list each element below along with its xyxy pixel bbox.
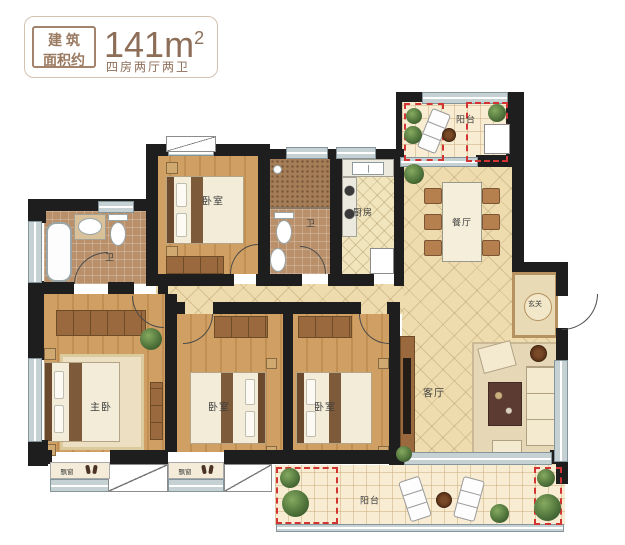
plant-icon bbox=[396, 446, 412, 462]
wall bbox=[394, 159, 404, 286]
area-tag-line1: 建 筑 bbox=[34, 30, 94, 50]
toilet bbox=[110, 222, 126, 246]
wall bbox=[28, 282, 74, 294]
room-label-bedroom-right: 卧室 bbox=[314, 399, 336, 414]
wall bbox=[165, 294, 177, 452]
dining-chair bbox=[424, 188, 442, 204]
sliding-door bbox=[404, 452, 552, 465]
plant-icon bbox=[534, 494, 561, 521]
fridge bbox=[370, 248, 394, 274]
wall bbox=[258, 144, 270, 286]
shower-head-icon bbox=[273, 165, 282, 174]
wardrobe bbox=[56, 310, 146, 336]
floorplan-page: 建 筑 面积约 141m2 四房两厅两卫 bbox=[0, 0, 625, 545]
area-tag-line2: 面积约 bbox=[34, 50, 94, 70]
area-exponent: 2 bbox=[194, 28, 204, 48]
plant-icon bbox=[404, 126, 422, 144]
coffee-table bbox=[488, 382, 522, 426]
room-label-bath-mid: 卫 bbox=[306, 217, 316, 230]
window bbox=[286, 147, 328, 159]
room-label-balcony-top: 阳台 bbox=[456, 113, 476, 126]
dining-chair bbox=[424, 240, 442, 256]
dining-chair bbox=[424, 214, 442, 230]
wall bbox=[213, 302, 283, 314]
plant-icon bbox=[280, 468, 300, 488]
ac-platform bbox=[166, 136, 216, 152]
bed-headboard bbox=[297, 373, 304, 443]
wall bbox=[396, 100, 402, 162]
toilet-tank bbox=[274, 212, 294, 219]
window bbox=[336, 147, 376, 159]
plant-icon bbox=[406, 108, 422, 124]
entry-door-arc bbox=[562, 294, 598, 330]
toilet bbox=[276, 220, 292, 244]
nightstand bbox=[266, 358, 277, 369]
bed-pillow bbox=[176, 183, 187, 207]
room-label-living: 客厅 bbox=[423, 385, 445, 400]
room-label-bay-window-left: 飘窗 bbox=[61, 466, 74, 476]
plant-icon bbox=[490, 504, 509, 523]
wall bbox=[28, 450, 52, 464]
wall bbox=[330, 149, 342, 286]
nightstand bbox=[44, 348, 56, 360]
room-label-balcony-bottom: 阳台 bbox=[360, 494, 380, 507]
dresser bbox=[166, 256, 224, 274]
balcony-railing bbox=[276, 524, 564, 532]
wall bbox=[389, 302, 400, 452]
bay-window-seat bbox=[50, 462, 110, 479]
room-label-foyer: 玄关 bbox=[528, 299, 542, 309]
window bbox=[554, 360, 568, 462]
bed-pillow bbox=[245, 379, 255, 405]
nightstand bbox=[378, 358, 389, 369]
bed-headboard bbox=[258, 373, 265, 443]
bay-window-glass bbox=[168, 479, 224, 492]
wall bbox=[224, 450, 390, 464]
bed-pillow bbox=[176, 213, 187, 237]
plant-icon bbox=[537, 469, 555, 487]
plant-icon bbox=[282, 490, 309, 517]
round-table bbox=[436, 492, 452, 508]
bay-window-glass bbox=[50, 479, 110, 492]
bed-headboard bbox=[45, 363, 52, 441]
toilet-tank bbox=[108, 214, 128, 221]
bed-pillow bbox=[54, 405, 64, 433]
dining-chair bbox=[482, 188, 500, 204]
bathtub bbox=[46, 222, 72, 282]
dresser bbox=[214, 316, 268, 338]
kitchen-sink bbox=[352, 162, 384, 175]
bed-pillow bbox=[245, 411, 255, 437]
wall bbox=[110, 450, 168, 464]
room-label-master-bedroom: 主卧 bbox=[90, 399, 112, 414]
wall bbox=[293, 302, 361, 314]
round-table bbox=[442, 128, 456, 142]
wall bbox=[328, 274, 374, 286]
sink bbox=[270, 248, 286, 272]
side-table bbox=[530, 345, 547, 362]
bed-blanket-stripe bbox=[191, 177, 203, 243]
window bbox=[98, 201, 134, 213]
area-value: 141m2 bbox=[104, 20, 204, 63]
wall bbox=[146, 148, 158, 286]
bed-pillow bbox=[306, 411, 316, 437]
dining-chair bbox=[482, 214, 500, 230]
room-label-kitchen: 厨房 bbox=[353, 206, 373, 219]
room-label-bath-left: 卫 bbox=[105, 251, 115, 264]
bed-headboard bbox=[167, 177, 174, 243]
wall bbox=[556, 262, 568, 296]
dresser bbox=[150, 382, 163, 440]
wall bbox=[156, 274, 234, 286]
wall bbox=[177, 302, 185, 314]
plant-icon bbox=[140, 328, 162, 350]
window bbox=[28, 221, 42, 283]
window bbox=[28, 358, 42, 442]
wall bbox=[108, 282, 134, 294]
ac-platform bbox=[108, 464, 168, 492]
area-subtitle: 四房两厅两卫 bbox=[106, 58, 190, 75]
bed-pillow bbox=[54, 371, 64, 399]
room-label-bedroom-mid: 卧室 bbox=[208, 399, 230, 414]
dresser bbox=[298, 316, 352, 338]
ac-platform bbox=[224, 464, 272, 492]
wall bbox=[556, 328, 568, 364]
room-label-dining: 餐厅 bbox=[452, 216, 472, 229]
nightstand bbox=[166, 162, 178, 174]
plant-icon bbox=[404, 164, 424, 184]
wall bbox=[266, 274, 302, 286]
room-label-bay-window-mid: 飘窗 bbox=[179, 466, 192, 476]
wall bbox=[283, 302, 293, 452]
area-tag-box: 建 筑 面积约 bbox=[32, 26, 96, 68]
bed bbox=[166, 176, 244, 244]
wall bbox=[512, 262, 562, 272]
plant-icon bbox=[488, 104, 506, 122]
bed-blanket-stripe bbox=[69, 363, 82, 441]
washing-machine bbox=[484, 124, 510, 154]
sink bbox=[78, 218, 102, 235]
tv bbox=[403, 358, 411, 434]
wall bbox=[512, 158, 524, 270]
room-label-bedroom-top: 卧室 bbox=[202, 193, 224, 208]
bay-window-seat bbox=[168, 462, 224, 479]
dining-chair bbox=[482, 240, 500, 256]
